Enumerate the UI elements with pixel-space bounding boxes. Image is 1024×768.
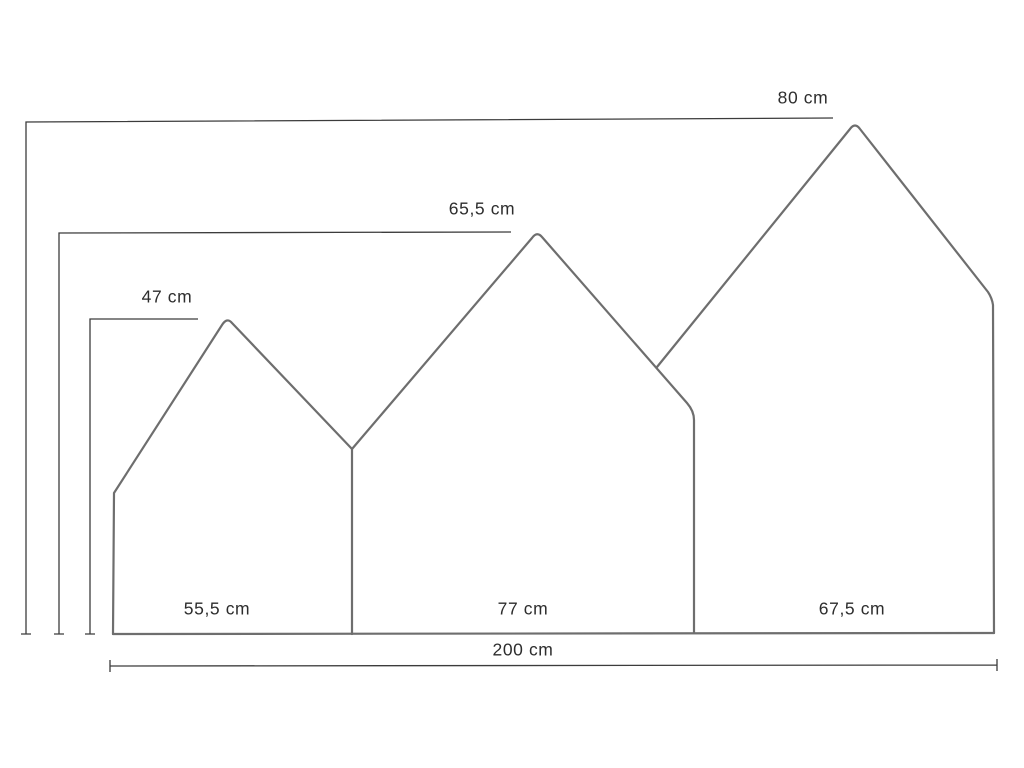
panel-outlines [113,126,994,635]
width-right-label: 67,5 cm [819,599,885,620]
panel-middle-outline [352,234,694,633]
width-total-label: 200 cm [493,640,554,661]
panel-right-outline [657,126,994,634]
width-left-label: 55,5 cm [184,599,250,620]
height-back-label: 80 cm [778,88,829,109]
width-middle-label: 77 cm [498,599,549,620]
panels-bottom-edge [113,633,994,634]
height-middle-dim-line [54,232,511,634]
height-back-dim-line [21,118,833,634]
total-width-dim-line [110,659,997,672]
height-front-label: 47 cm [142,287,193,308]
height-middle-label: 65,5 cm [449,199,515,220]
dimension-diagram-page: 80 cm 65,5 cm 47 cm 55,5 cm 77 cm 67,5 c… [0,0,1024,768]
height-front-dim-line [85,319,198,634]
panel-left-outline [113,320,352,634]
